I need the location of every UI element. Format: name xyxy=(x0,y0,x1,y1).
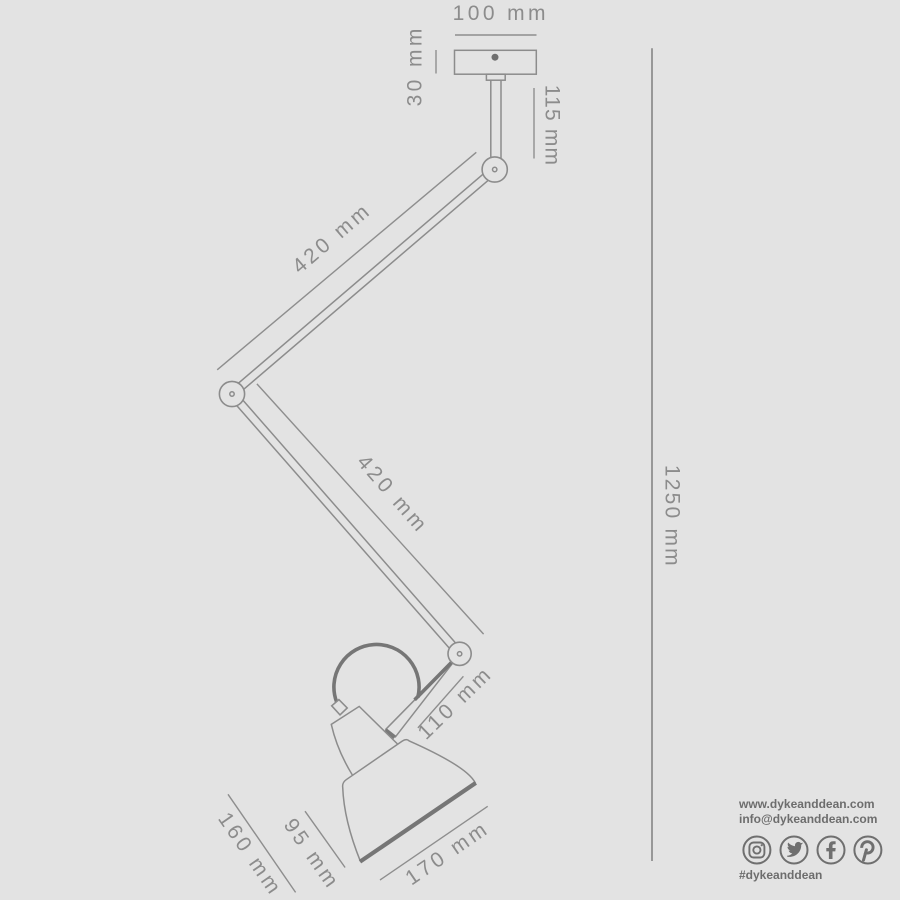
svg-text:30 mm: 30 mm xyxy=(403,25,426,106)
svg-text:1250 mm: 1250 mm xyxy=(661,465,684,568)
svg-text:115 mm: 115 mm xyxy=(541,85,564,167)
svg-text:100 mm: 100 mm xyxy=(453,2,549,25)
svg-text:info@dykeanddean.com: info@dykeanddean.com xyxy=(739,812,877,826)
svg-text:www.dykeanddean.com: www.dykeanddean.com xyxy=(738,797,875,811)
svg-text:#dykeanddean: #dykeanddean xyxy=(739,868,822,882)
